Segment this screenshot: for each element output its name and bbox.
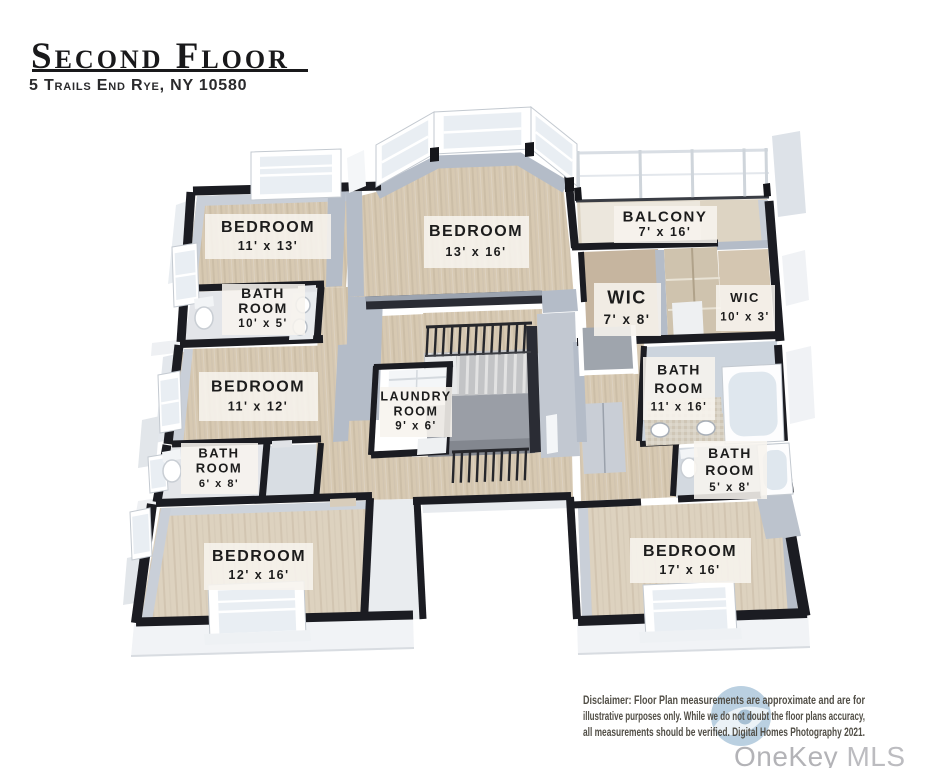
svg-text:BEDROOM: BEDROOM (212, 548, 306, 565)
svg-text:BEDROOM: BEDROOM (211, 378, 305, 395)
svg-text:WIC: WIC (607, 287, 647, 307)
svg-text:all measurements should be ver: all measurements should be verified. Dig… (583, 727, 865, 739)
svg-text:13' x 16': 13' x 16' (445, 245, 506, 259)
svg-text:17' x 16': 17' x 16' (659, 563, 720, 577)
svg-text:LAUNDRY: LAUNDRY (380, 390, 451, 404)
svg-text:Disclaimer: Floor Plan measu: Disclaimer: Floor Plan measurements are … (583, 695, 865, 707)
svg-text:7' x 8': 7' x 8' (604, 312, 651, 327)
svg-text:11' x 16': 11' x 16' (651, 402, 708, 414)
svg-text:BALCONY: BALCONY (623, 209, 708, 226)
svg-text:illustrative purposes only. Wh: illustrative purposes only. While we do … (583, 711, 865, 723)
svg-text:11' x 12': 11' x 12' (228, 400, 288, 414)
svg-text:11' x 13': 11' x 13' (238, 239, 298, 253)
svg-text:BEDROOM: BEDROOM (643, 543, 737, 560)
svg-text:ROOM: ROOM (654, 380, 704, 396)
svg-text:ROOM: ROOM (705, 462, 755, 478)
svg-text:6' x 8': 6' x 8' (199, 478, 239, 490)
svg-text:BATH: BATH (198, 446, 239, 461)
svg-text:ROOM: ROOM (238, 300, 288, 316)
svg-text:7' x 16': 7' x 16' (639, 225, 692, 239)
svg-text:WIC: WIC (730, 290, 760, 305)
svg-text:9' x 6': 9' x 6' (395, 421, 437, 433)
svg-text:ROOM: ROOM (394, 404, 439, 418)
svg-text:10' x 3': 10' x 3' (720, 312, 769, 324)
svg-text:BEDROOM: BEDROOM (221, 219, 315, 236)
svg-text:BATH: BATH (708, 445, 752, 461)
svg-text:BEDROOM: BEDROOM (429, 223, 523, 240)
svg-text:10' x 5': 10' x 5' (238, 318, 287, 330)
svg-text:ROOM: ROOM (196, 461, 242, 476)
svg-text:BATH: BATH (241, 285, 285, 301)
svg-text:5' x 8': 5' x 8' (709, 482, 751, 494)
svg-text:BATH: BATH (657, 361, 701, 377)
svg-text:12' x 16': 12' x 16' (228, 568, 289, 582)
